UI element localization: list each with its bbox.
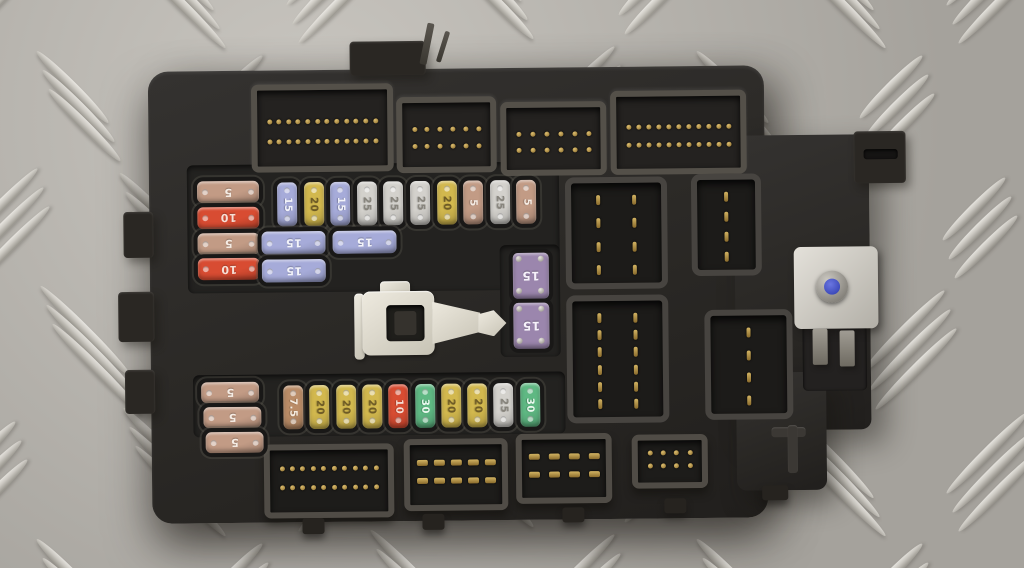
fuse-amp-label: 20 — [367, 399, 378, 414]
connector-pin — [598, 399, 602, 409]
clip-window-inner — [394, 311, 416, 335]
connector-pin — [373, 119, 378, 124]
connector-pin — [666, 124, 671, 129]
connector-pin — [586, 131, 591, 136]
connector-pin — [286, 139, 291, 144]
connector-pin — [676, 124, 681, 129]
connector-pin — [267, 120, 272, 125]
connector-pin — [634, 364, 638, 374]
connector-pin — [747, 396, 751, 406]
connector-pin — [569, 471, 580, 477]
connector-pin — [374, 484, 379, 489]
fuse-10a: 10 — [198, 258, 260, 281]
fuse-20a: 20 — [309, 385, 329, 429]
connector-pin — [598, 347, 602, 357]
connector-pin — [463, 127, 468, 132]
connector-pin — [516, 131, 521, 136]
connector-pin — [342, 466, 347, 471]
fuse-5a: 5 — [516, 180, 536, 224]
connector-pin — [626, 143, 631, 148]
connector-pin — [344, 139, 349, 144]
connector-pin — [315, 119, 320, 124]
mid-connector-socket — [691, 173, 762, 276]
connector-pin — [485, 477, 496, 483]
left-mounting-clip — [123, 212, 153, 258]
connector-pin — [666, 143, 671, 148]
connector-pin — [305, 120, 310, 125]
top-mounting-tab — [349, 41, 425, 76]
fuse-amp-label: 20 — [441, 195, 452, 210]
connector-pin — [747, 373, 751, 383]
connector-pin — [334, 139, 339, 144]
module-corner-pin — [516, 256, 522, 262]
connector-pin — [363, 484, 368, 489]
connector-pin — [572, 131, 577, 136]
connector-pin — [633, 265, 637, 275]
connector-pin — [373, 139, 378, 144]
connector-pin — [476, 127, 481, 132]
mid-connector-socket — [566, 294, 669, 423]
connector-pin — [353, 466, 358, 471]
connector-pin — [296, 139, 301, 144]
connector-pin — [572, 147, 577, 152]
connector-pin — [300, 485, 305, 490]
connector-pin — [434, 478, 445, 484]
connector-pin — [485, 459, 496, 465]
connector-pin — [676, 143, 681, 148]
connector-pin — [586, 147, 591, 152]
connector-pin — [696, 142, 701, 147]
connector-pin — [286, 120, 291, 125]
connector-pin — [280, 485, 285, 490]
fuse-amp-label: 10 — [393, 399, 404, 414]
fuse-amp-label: 20 — [472, 398, 483, 413]
connector-pin — [451, 478, 462, 484]
connector-pin — [549, 471, 560, 477]
connector-pin — [342, 484, 347, 489]
connector-pin — [417, 478, 428, 484]
connector-pin — [686, 143, 691, 148]
connector-pin — [438, 144, 443, 149]
fuse-30a: 30 — [415, 384, 435, 428]
module-corner-pin — [538, 288, 544, 294]
fuse-amp-label: 5 — [224, 185, 232, 198]
fuse-25a: 25 — [383, 181, 403, 225]
fuse-20a: 20 — [437, 181, 457, 225]
fuse-30a: 30 — [520, 383, 540, 427]
fuse-7.5a: 7.5 — [283, 385, 303, 429]
connector-pin — [311, 466, 316, 471]
connector-pin — [463, 143, 468, 148]
connector-pin — [687, 450, 692, 455]
connector-pin — [544, 147, 549, 152]
connector-pin — [706, 142, 711, 147]
connector-pin — [300, 466, 305, 471]
connector-pin — [726, 142, 731, 147]
connector-pin — [450, 144, 455, 149]
connector-pin — [549, 454, 560, 460]
stud-blue-tip — [824, 279, 840, 295]
fuse-25a: 25 — [493, 383, 513, 427]
module-corner-pin — [517, 338, 523, 344]
connector-pin — [647, 451, 652, 456]
fuse-amp-label: 15 — [285, 236, 301, 249]
fuse-5a: 5 — [201, 382, 259, 404]
fuse-10a: 10 — [197, 206, 259, 229]
connector-pin — [569, 454, 580, 460]
connector-pin — [267, 140, 272, 145]
connector-pin — [746, 328, 750, 338]
connector-pin — [716, 124, 721, 129]
connector-pin — [674, 450, 679, 455]
connector-pin — [529, 472, 540, 478]
connector-pin — [332, 466, 337, 471]
connector-pin — [412, 144, 417, 149]
connector-pin — [290, 466, 295, 471]
fuse-5a: 5 — [203, 407, 261, 429]
mid-connector-socket — [704, 309, 793, 420]
fuse-5a: 5 — [197, 232, 259, 255]
left-mounting-clip — [125, 370, 155, 414]
connector-pin — [558, 147, 563, 152]
connector-pin — [696, 124, 701, 129]
connector-pin — [468, 459, 479, 465]
connector-pin — [276, 120, 281, 125]
fuse-amp-label: 15 — [282, 197, 293, 212]
fuse-amp-label: 5 — [224, 237, 232, 250]
bottom-connector-block — [632, 434, 709, 489]
fuse-15a: 15 — [262, 259, 326, 283]
breaker-module-15a: 15 — [513, 303, 549, 349]
connector-pin — [530, 131, 535, 136]
connector-pin — [716, 142, 721, 147]
breaker-module-15a: 15 — [513, 253, 549, 299]
connector-pin — [725, 252, 729, 262]
left-mounting-clip — [118, 292, 155, 342]
module-corner-pin — [516, 306, 522, 312]
fuse-amp-label: 20 — [314, 400, 325, 415]
connector-pin — [686, 124, 691, 129]
connector-pin — [597, 242, 601, 252]
connector-pin — [596, 218, 600, 228]
connector-pin — [589, 471, 600, 477]
module-amp-label: 15 — [523, 319, 541, 333]
fuse-amp-label: 15 — [335, 196, 346, 211]
connector-pin — [353, 119, 358, 124]
top-connector-tower — [500, 101, 607, 176]
connector-pin — [632, 218, 636, 228]
connector-pin — [597, 313, 601, 323]
connector-pin — [636, 124, 641, 129]
connector-pin — [425, 127, 430, 132]
fuse-15a: 15 — [277, 182, 297, 226]
bracket-terminal-tab — [840, 330, 855, 366]
connector-pin — [544, 131, 549, 136]
fuse-amp-label: 5 — [228, 411, 236, 424]
connector-pin — [321, 485, 326, 490]
connector-pin — [724, 192, 728, 202]
fuse-5a: 5 — [463, 180, 483, 224]
connector-pin — [598, 382, 602, 392]
connector-pin — [363, 466, 368, 471]
right-tab-slot — [864, 149, 898, 159]
fuse-15a: 15 — [332, 230, 396, 254]
bottom-connector-block — [516, 433, 613, 504]
connector-pin — [363, 119, 368, 124]
connector-pin — [451, 460, 462, 466]
connector-pin — [306, 139, 311, 144]
connector-pin — [332, 485, 337, 490]
fuse-amp-label: 5 — [230, 436, 238, 449]
wire-stub-icon — [436, 31, 450, 63]
fuse-5a: 5 — [197, 181, 259, 204]
connector-pin — [476, 143, 481, 148]
fuse-10a: 10 — [388, 384, 408, 428]
connector-pin — [296, 120, 301, 125]
connector-pin — [647, 463, 652, 468]
fuse-amp-label: 20 — [340, 399, 351, 414]
connector-pin — [354, 139, 359, 144]
connector-pin — [598, 365, 602, 375]
connector-pin — [412, 127, 417, 132]
module-corner-pin — [538, 256, 544, 262]
connector-pin — [724, 212, 728, 222]
top-connector-tower — [251, 83, 394, 172]
top-connector-tower — [396, 96, 497, 173]
connector-pin — [530, 147, 535, 152]
connector-pin — [437, 127, 442, 132]
connector-pin — [656, 124, 661, 129]
right-mounting-tab — [853, 131, 906, 184]
connector-pin — [290, 485, 295, 490]
connector-pin — [589, 453, 600, 459]
connector-pin — [344, 119, 349, 124]
fuse-amp-label: 20 — [308, 197, 319, 212]
connector-pin — [634, 399, 638, 409]
connector-pin — [325, 139, 330, 144]
fuse-amp-label: 5 — [226, 386, 234, 399]
connector-pin — [516, 148, 521, 153]
connector-pin — [636, 143, 641, 148]
connector-pin — [450, 127, 455, 132]
fuse-25a: 25 — [357, 181, 377, 225]
bracket-terminal-tab — [812, 329, 827, 365]
connector-pin — [656, 143, 661, 148]
connector-pin — [597, 330, 601, 340]
fuse-20a: 20 — [304, 182, 324, 226]
connector-pin — [315, 139, 320, 144]
connector-pin — [425, 144, 430, 149]
fuse-amp-label: 5 — [468, 199, 479, 207]
fuse-amp-label: 20 — [445, 398, 456, 413]
connector-pin — [434, 460, 445, 466]
fuse-5a: 5 — [206, 432, 264, 454]
fuse-20a: 20 — [336, 385, 356, 429]
fuse-15a: 15 — [330, 182, 350, 226]
top-connector-tower — [610, 90, 747, 175]
connector-pin — [646, 143, 651, 148]
connector-pin — [726, 123, 731, 128]
connector-pin — [279, 466, 284, 471]
fuse-amp-label: 10 — [221, 263, 237, 276]
connector-pin — [529, 454, 540, 460]
connector-pin — [633, 330, 637, 340]
connector-pin — [363, 139, 368, 144]
fuse-15a: 15 — [261, 231, 325, 255]
connector-pin — [353, 484, 358, 489]
module-corner-pin — [538, 306, 544, 312]
fuse-20a: 20 — [467, 383, 487, 427]
fuse-amp-label: 15 — [356, 235, 372, 248]
photo-fusebox-on-checker-plate: 5105101520152525252052551515155557.52020… — [0, 0, 1024, 568]
fuse-amp-label: 25 — [494, 195, 505, 210]
fuse-25a: 25 — [410, 181, 430, 225]
module-amp-label: 15 — [522, 269, 540, 283]
connector-pin — [724, 232, 728, 242]
connector-pin — [632, 195, 636, 205]
connector-pin — [596, 195, 600, 205]
fuse-amp-label: 30 — [524, 397, 535, 412]
connector-pin — [321, 466, 326, 471]
connector-pin — [373, 466, 378, 471]
connector-pin — [687, 463, 692, 468]
connector-pin — [633, 241, 637, 251]
fuse-amp-label: 25 — [361, 196, 372, 211]
fuse-amp-label: 25 — [388, 196, 399, 211]
fuse-25a: 25 — [490, 180, 510, 224]
connector-pin — [597, 265, 601, 275]
fuse-amp-label: 10 — [220, 211, 236, 224]
connector-pin — [417, 460, 428, 466]
bottom-connector-block — [264, 443, 395, 518]
mid-connector-socket — [565, 176, 668, 289]
connector-pin — [674, 463, 679, 468]
fuse-amp-label: 15 — [286, 264, 302, 277]
connector-pin — [661, 463, 666, 468]
connector-pin — [661, 450, 666, 455]
connector-pin — [634, 347, 638, 357]
fuse-box: 5105101520152525252052551515155557.52020… — [0, 0, 1024, 568]
fuse-amp-label: 25 — [498, 398, 509, 413]
connector-pin — [747, 350, 751, 360]
connector-pin — [634, 381, 638, 391]
connector-pin — [558, 131, 563, 136]
connector-pin — [325, 119, 330, 124]
connector-pin — [646, 124, 651, 129]
connector-pin — [633, 313, 637, 323]
connector-pin — [277, 140, 282, 145]
connector-pin — [468, 477, 479, 483]
module-corner-pin — [539, 338, 545, 344]
connector-pin — [334, 119, 339, 124]
fuse-20a: 20 — [362, 384, 382, 428]
connector-pin — [626, 124, 631, 129]
connector-pin — [311, 485, 316, 490]
fuse-20a: 20 — [441, 384, 461, 428]
fuse-amp-label: 5 — [521, 198, 532, 206]
fuse-amp-label: 25 — [415, 195, 426, 210]
bottom-connector-block — [404, 438, 509, 511]
fuse-amp-label: 7.5 — [288, 398, 299, 417]
module-corner-pin — [516, 288, 522, 294]
fuse-amp-label: 30 — [419, 398, 430, 413]
connector-pin — [706, 124, 711, 129]
